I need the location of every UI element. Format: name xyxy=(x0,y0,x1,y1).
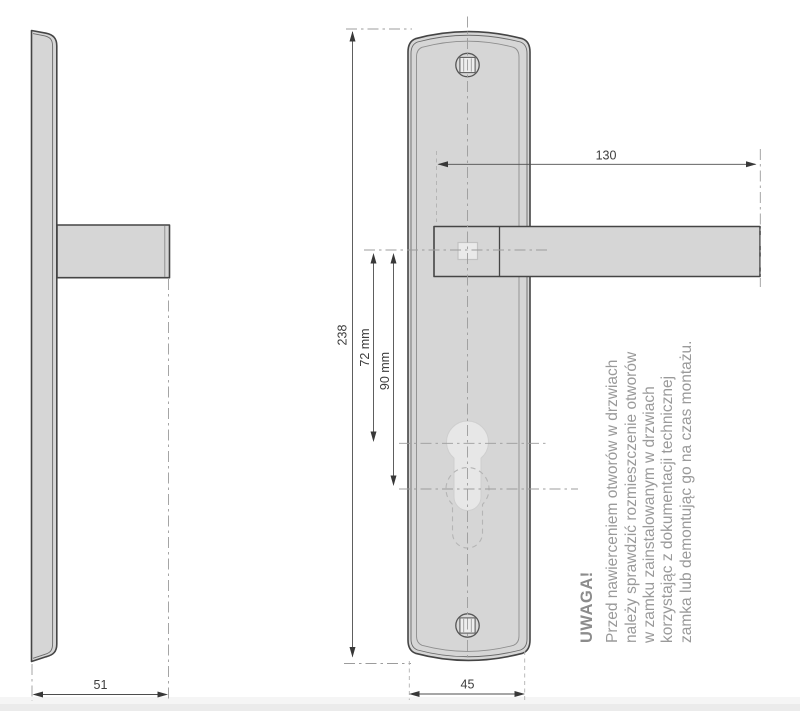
dimension-label-51: 51 xyxy=(94,678,108,692)
front-handle xyxy=(434,227,760,277)
warning-line-2: należy sprawdzić rozmieszczenie otworów xyxy=(623,351,640,643)
bottom-shade-band xyxy=(0,704,800,711)
door-plate-technical-drawing: 51 xyxy=(0,0,800,711)
dimension-label-238: 238 xyxy=(336,325,350,346)
dimension-label-130: 130 xyxy=(596,149,617,163)
side-handle xyxy=(57,225,170,278)
warning-line-5: zamka lub demontując go na czas montażu. xyxy=(678,341,695,643)
dimension-label-45: 45 xyxy=(461,678,475,692)
dimension-label-90mm: 90 mm xyxy=(378,352,392,390)
bottom-shade-band xyxy=(0,697,800,705)
warning-line-3: w zamku zainstalowanym w drzwiach xyxy=(641,386,658,644)
dimension-label-72mm: 72 mm xyxy=(358,328,372,366)
front-plate xyxy=(408,32,530,661)
warning-line-1: Przed nawierceniem otworów w drzwiach xyxy=(604,360,621,643)
warning-heading: UWAGA! xyxy=(578,571,596,643)
warning-line-4: korzystając z dokumentacji technicznej xyxy=(659,376,676,643)
handle-lever xyxy=(434,227,760,277)
drawing-canvas: 51 xyxy=(0,0,800,711)
